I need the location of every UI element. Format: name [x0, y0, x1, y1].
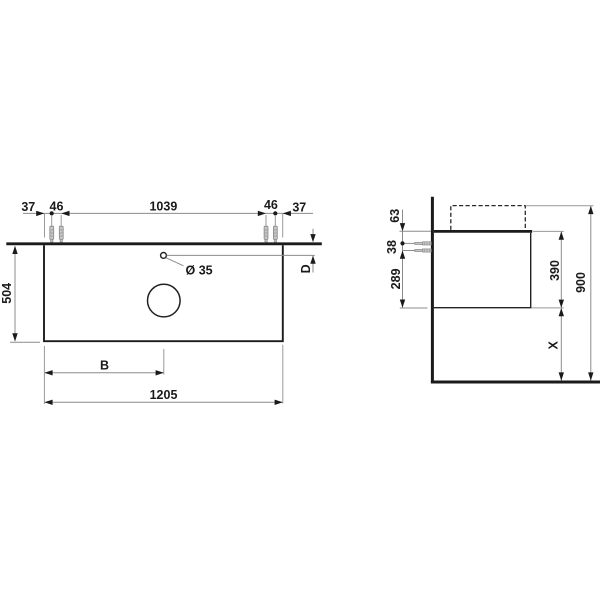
- svg-text:63: 63: [388, 209, 402, 223]
- svg-text:X: X: [547, 340, 561, 349]
- svg-text:504: 504: [0, 283, 14, 304]
- svg-text:390: 390: [548, 260, 562, 281]
- svg-text:D: D: [299, 264, 313, 273]
- svg-text:B: B: [100, 358, 109, 372]
- svg-text:1039: 1039: [149, 199, 177, 213]
- svg-text:37: 37: [21, 200, 35, 214]
- svg-text:900: 900: [574, 272, 588, 293]
- svg-text:289: 289: [389, 268, 403, 289]
- svg-text:37: 37: [292, 200, 306, 214]
- svg-text:46: 46: [264, 198, 278, 212]
- svg-text:46: 46: [50, 199, 64, 213]
- svg-text:38: 38: [385, 240, 399, 254]
- svg-text:1205: 1205: [150, 388, 178, 402]
- svg-text:Ø 35: Ø 35: [186, 263, 213, 277]
